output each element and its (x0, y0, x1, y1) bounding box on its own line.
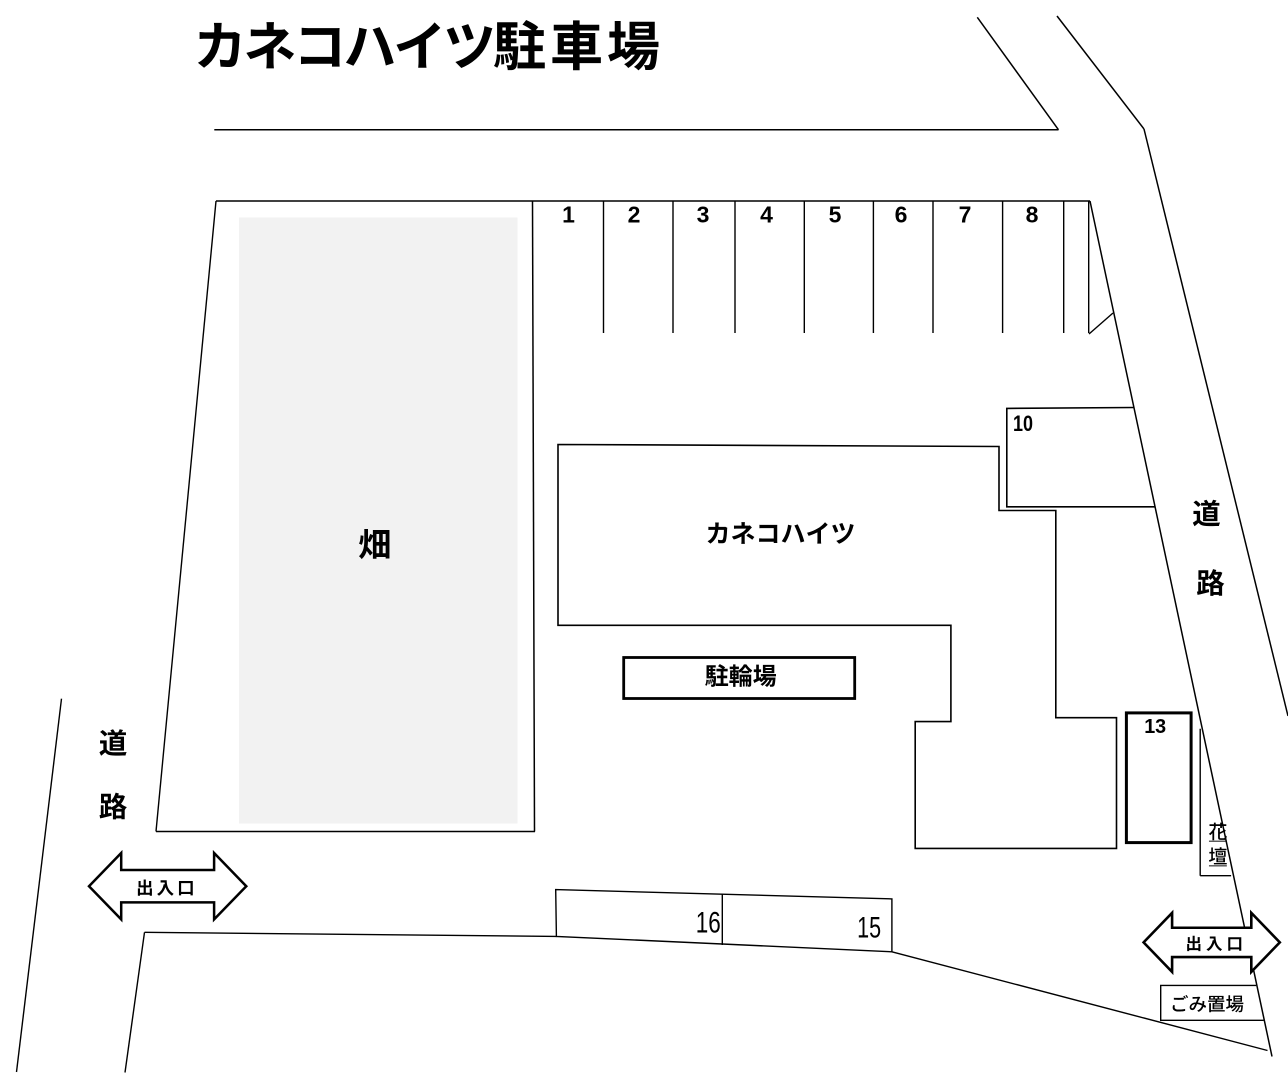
svg-text:4: 4 (760, 201, 773, 227)
svg-text:15: 15 (857, 911, 881, 944)
svg-text:13: 13 (1144, 716, 1166, 738)
svg-text:3: 3 (697, 201, 710, 227)
svg-text:16: 16 (696, 907, 721, 940)
svg-text:1: 1 (562, 201, 575, 227)
svg-text:10: 10 (1013, 411, 1033, 436)
svg-text:6: 6 (895, 201, 908, 227)
svg-text:7: 7 (959, 201, 972, 227)
svg-text:2: 2 (628, 201, 641, 227)
svg-text:8: 8 (1026, 201, 1039, 227)
svg-text:5: 5 (829, 201, 842, 227)
